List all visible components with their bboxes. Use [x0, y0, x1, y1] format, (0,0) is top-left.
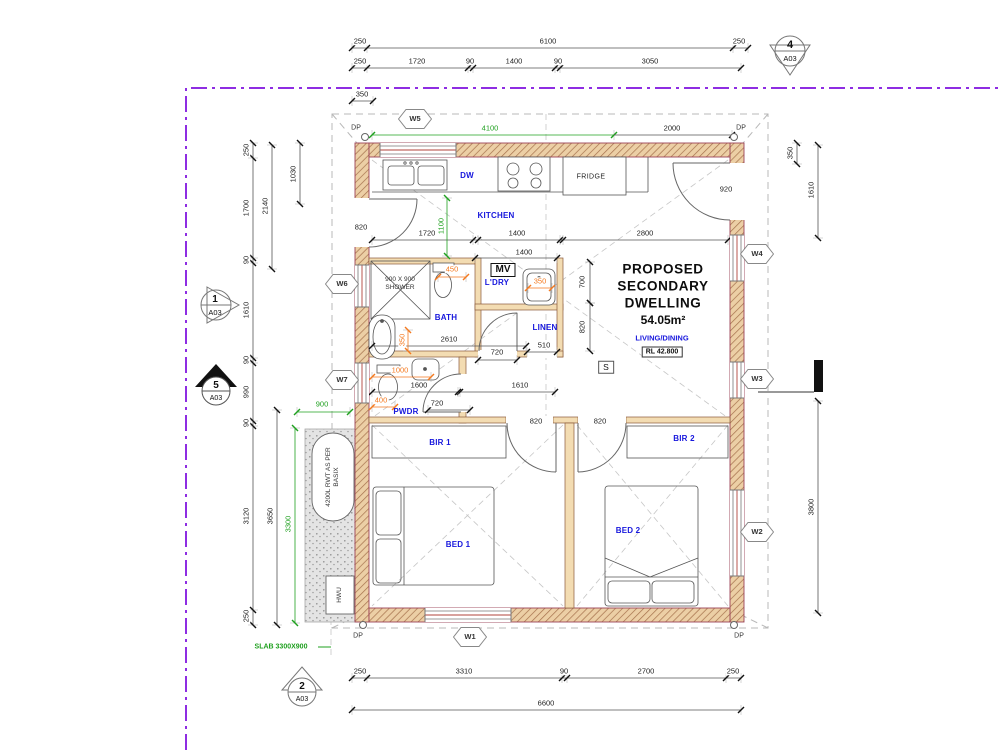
- dimension-label: 2000: [663, 124, 682, 132]
- slab-note: SLAB 3300X900: [255, 644, 308, 651]
- dimension-label: 820: [593, 417, 608, 425]
- drawing-ref-4: 4A03: [767, 35, 813, 85]
- svg-text:4: 4: [787, 39, 794, 51]
- dimension-label: 450: [445, 265, 460, 273]
- dimension-label: 1720: [418, 229, 437, 237]
- dimension-label: 1000: [391, 366, 410, 374]
- dimension-label: 720: [490, 348, 505, 356]
- window-tag: W3: [740, 369, 774, 389]
- smoke-alarm-symbol: S: [598, 361, 614, 374]
- room-label: KITCHEN: [478, 212, 515, 220]
- room-label: DW: [460, 172, 474, 180]
- window-tag: W2: [740, 522, 774, 542]
- dimension-label: 2610: [440, 335, 459, 343]
- mechanical-vent-symbol: MV: [491, 263, 516, 277]
- dimension-label: 6100: [539, 37, 558, 45]
- dwelling-title-line-1: PROPOSED: [622, 262, 703, 276]
- svg-text:A03: A03: [210, 395, 223, 402]
- downpipe-label: DP: [353, 633, 363, 640]
- dimension-label: 2140: [261, 197, 269, 216]
- dimension-label: 3650: [266, 507, 274, 526]
- dimension-label: 820: [529, 417, 544, 425]
- room-label: BED 2: [616, 527, 641, 535]
- dimension-label: 3050: [641, 57, 660, 65]
- room-label: LINEN: [533, 324, 558, 332]
- dimension-label: 350: [786, 146, 794, 161]
- room-label: PWDR: [393, 408, 418, 416]
- dimension-label: 90: [553, 57, 563, 65]
- dimension-label: 1600: [410, 381, 429, 389]
- dimension-label: 250: [726, 667, 741, 675]
- dimension-label: 1100: [437, 217, 445, 235]
- svg-text:2: 2: [299, 681, 305, 692]
- dimension-label: 820: [578, 320, 586, 335]
- downpipe-label: DP: [734, 633, 744, 640]
- dimension-label: 1400: [508, 229, 527, 237]
- dimension-label: 250: [732, 37, 747, 45]
- dimension-label: 90: [242, 255, 250, 265]
- dimension-label: 820: [354, 223, 369, 231]
- dimension-label: 1610: [511, 381, 530, 389]
- drawing-ref-1: 1A03: [199, 282, 245, 332]
- room-label: FRIDGE: [577, 174, 606, 181]
- window-tag: W4: [740, 244, 774, 264]
- room-label: BED 1: [446, 541, 471, 549]
- window-tag: W1: [453, 627, 487, 647]
- dimension-label: 350: [533, 277, 548, 285]
- dimension-label: 90: [559, 667, 569, 675]
- living-dining-label: LIVING/DINING: [635, 334, 688, 342]
- dimension-label: 1700: [242, 199, 250, 218]
- dwelling-title-line-3: DWELLING: [625, 296, 702, 310]
- hwu-label: HWU: [336, 587, 344, 603]
- downpipe: [360, 130, 370, 146]
- room-label: BIR 1: [429, 439, 450, 447]
- dimension-label: 990: [242, 385, 250, 400]
- svg-text:A03: A03: [783, 54, 796, 63]
- dimension-label: 400: [374, 396, 389, 404]
- floor-plan-canvas: 2506100250250172090140090305035041002000…: [0, 0, 1000, 750]
- room-label: BATH: [435, 314, 457, 322]
- svg-text:5: 5: [213, 380, 219, 391]
- dimension-label: 2700: [637, 667, 656, 675]
- room-label: L'DRY: [485, 279, 509, 287]
- svg-text:A03: A03: [208, 308, 221, 317]
- downpipe: [729, 130, 739, 146]
- dimension-label: 90: [242, 418, 250, 428]
- dimension-label: 3300: [284, 515, 292, 534]
- dimension-label: 700: [578, 275, 586, 290]
- svg-text:1: 1: [212, 294, 218, 305]
- drawing-ref-5: 5A03: [193, 361, 239, 411]
- rainwater-tank-note: 4200L RWT AS PER BASIX: [325, 446, 341, 508]
- dimension-label: 250: [353, 667, 368, 675]
- rl-level-label: RL 42.800: [642, 347, 683, 358]
- window-tag: W7: [325, 370, 359, 390]
- dimension-label: 1610: [807, 181, 815, 200]
- dimension-label: 1400: [515, 248, 534, 256]
- interior-walls: [369, 258, 730, 608]
- dwelling-title-line-2: SECONDARY: [617, 279, 708, 293]
- dimension-label: 4100: [481, 124, 500, 132]
- dimension-label: 350: [398, 333, 406, 348]
- dimension-label: 3800: [807, 498, 815, 517]
- dimension-label: 90: [465, 57, 475, 65]
- dimension-label: 510: [537, 341, 552, 349]
- dwelling-area-label: 54.05m²: [641, 314, 686, 326]
- dimension-label: 1400: [505, 57, 524, 65]
- dimension-label: 250: [242, 609, 250, 624]
- dimension-label: 720: [430, 399, 445, 407]
- window-tag: W5: [398, 109, 432, 129]
- dimension-label: 90: [242, 355, 250, 365]
- dimension-label: 250: [242, 143, 250, 158]
- plan-linework: [0, 0, 1000, 750]
- dimension-label: 2800: [636, 229, 655, 237]
- downpipe-label: DP: [351, 125, 361, 132]
- window-tag: W6: [325, 274, 359, 294]
- svg-text:A03: A03: [296, 696, 309, 703]
- dimension-label: 3310: [455, 667, 474, 675]
- dimension-label: 3120: [242, 507, 250, 526]
- dimension-label: 6600: [537, 699, 556, 707]
- downpipe-label: DP: [736, 125, 746, 132]
- dimension-label: 920: [719, 185, 734, 193]
- dimension-label: 1720: [408, 57, 427, 65]
- shower-note: 900 X 900 SHOWER: [378, 276, 422, 292]
- drawing-ref-2: 2A03: [279, 663, 325, 713]
- room-label: BIR 2: [673, 435, 694, 443]
- dimension-label: 250: [353, 37, 368, 45]
- dimension-label: 250: [353, 57, 368, 65]
- dimension-label: 900: [315, 400, 330, 408]
- dimension-label: 1030: [289, 165, 297, 184]
- dimension-label: 350: [355, 90, 370, 98]
